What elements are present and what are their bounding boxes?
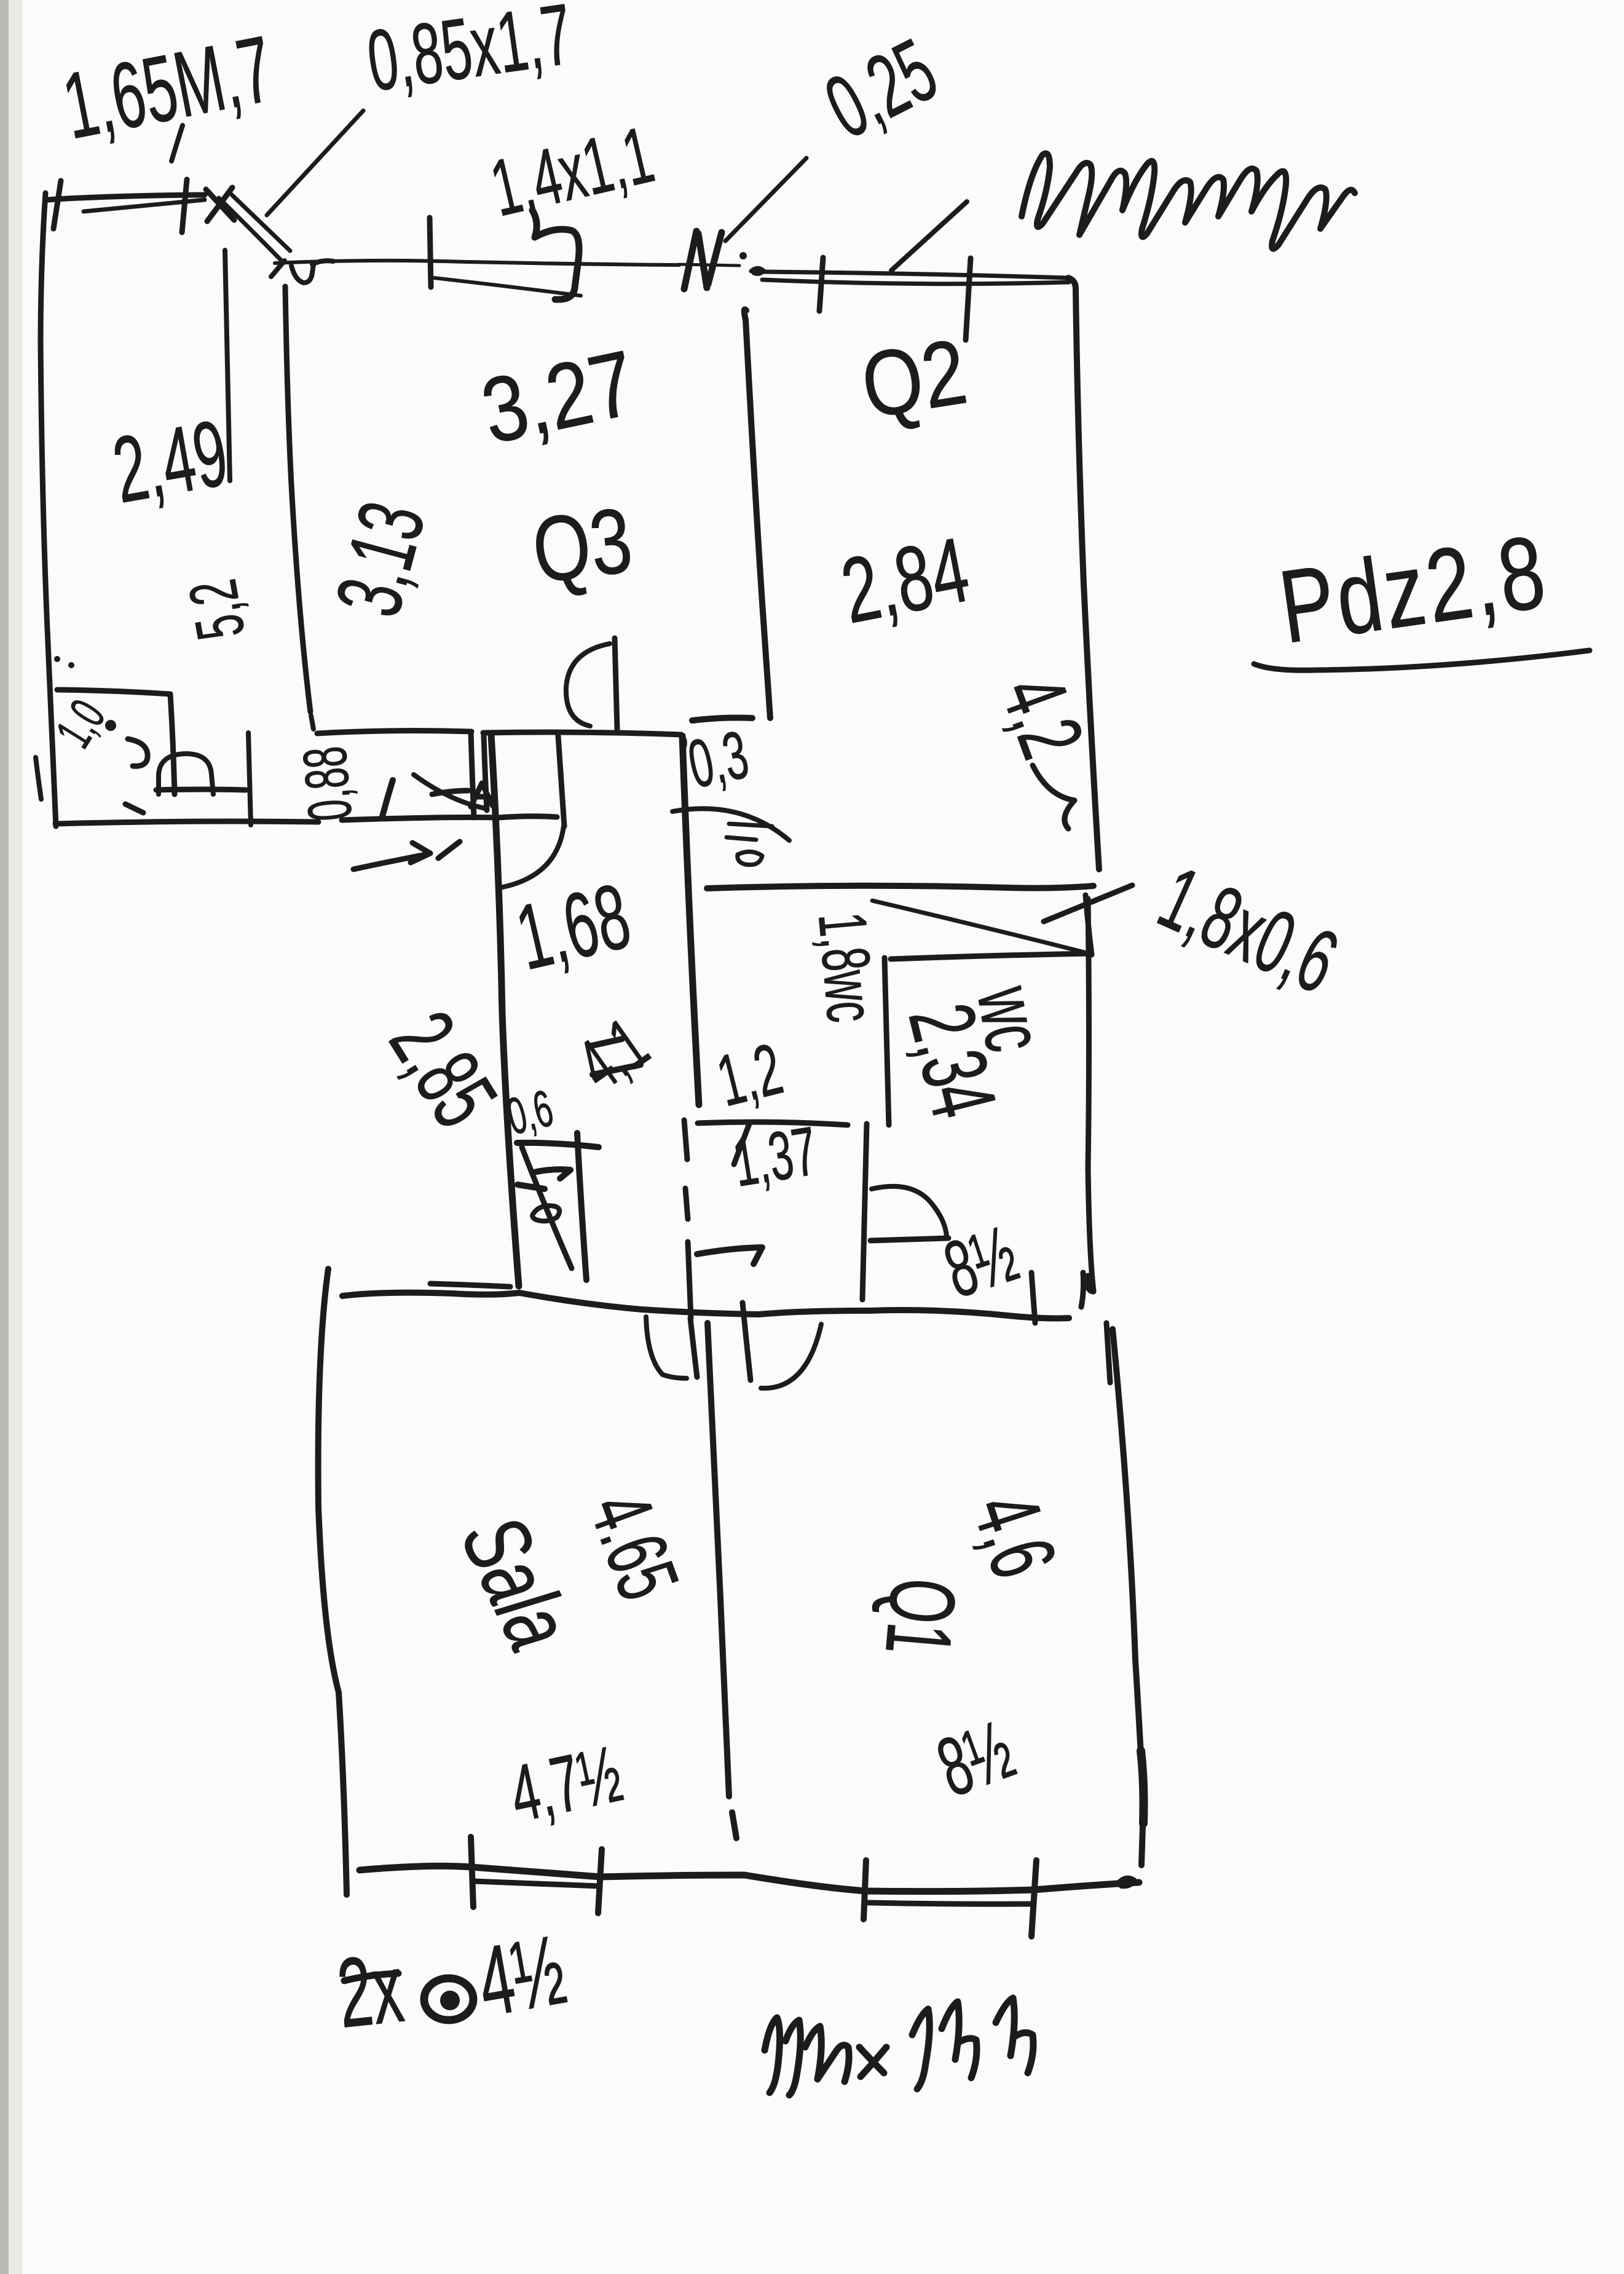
svg-text:Q2: Q2 [855, 320, 973, 438]
svg-text:2,49: 2,49 [106, 400, 235, 523]
svg-text:Q1: Q1 [866, 1574, 975, 1659]
svg-text:0,88: 0,88 [290, 744, 365, 824]
svg-text:Q3: Q3 [527, 488, 637, 602]
svg-text:1,8wc: 1,8wc [804, 909, 889, 1025]
svg-text:1,37: 1,37 [728, 1112, 822, 1201]
svg-text:2x: 2x [333, 1933, 408, 2049]
